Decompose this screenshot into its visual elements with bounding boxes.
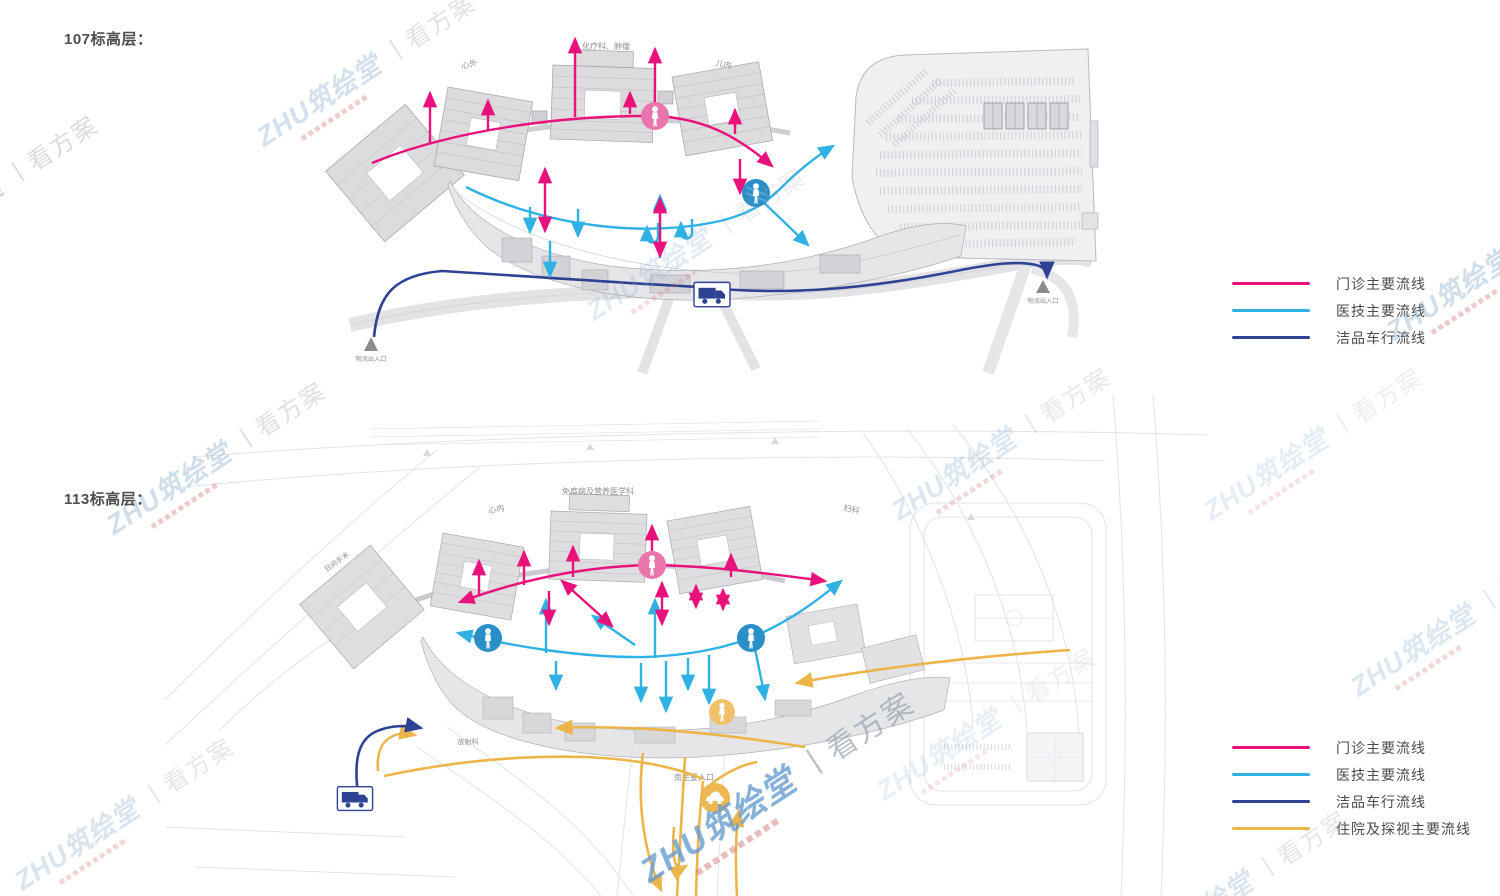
plan-113-title: 113标高层： (64, 488, 152, 509)
logistics-label-left: 物流出入口 (356, 355, 387, 363)
pedestrian-icon-medtech-left (474, 624, 502, 652)
site-roads-113 (165, 395, 1207, 896)
legend-item-medtech: 医技主要流线 (1232, 297, 1426, 324)
legend-113: 门诊主要流线 医技主要流线 洁品车行流线 住院及探视主要流线 (1232, 734, 1471, 842)
legend-item-outpatient: 门诊主要流线 (1232, 734, 1471, 761)
watermark-brand: ZHU筑绘堂 (1341, 594, 1482, 704)
legend-line-outpatient (1232, 746, 1310, 749)
legend-line-medtech (1232, 309, 1310, 312)
pedestrian-icon-medtech-right (737, 624, 765, 652)
truck-icon-107 (694, 282, 730, 306)
pedestrian-icon-outpatient (641, 102, 669, 130)
legend-label: 住院及探视主要流线 (1336, 819, 1471, 839)
plan-107-drawing: 心外 化疗科、肿瘤 儿内 物流出入口 物流出入口 (320, 25, 1150, 375)
watermark-suffix: 丨看方案 (1323, 358, 1429, 444)
clean-goods-flow-113 (356, 726, 421, 794)
pedestrian-icon-inpatient (709, 699, 735, 725)
watermark-suffix: 丨看方案 (1470, 534, 1500, 620)
legend-line-clean-goods (1232, 800, 1310, 803)
south-entrance-label: 南主要入口 (674, 772, 714, 782)
pedestrian-icon-outpatient (638, 551, 666, 579)
legend-label: 门诊主要流线 (1336, 274, 1426, 294)
parking-area-107 (852, 49, 1098, 261)
truck-icon-113 (337, 787, 372, 811)
slide-canvas: 107标高层： 113标高层： (0, 0, 1500, 896)
plan-113-drawing: 心内 免疫病及营养医学科 妇科 放射科 南主要入口 日间手术 (165, 395, 1235, 896)
dept-label-left: 心内 (488, 503, 506, 516)
watermark-suffix: 丨看方案 (0, 106, 104, 192)
dept-label-right: 妇科 (843, 503, 861, 516)
pedestrian-icon-medtech (742, 179, 770, 207)
legend-107: 门诊主要流线 医技主要流线 洁品车行流线 (1232, 270, 1426, 351)
logistics-label-right: 物流出入口 (1028, 297, 1059, 305)
dept-label-left: 心外 (460, 57, 478, 71)
watermark: ZHU筑绘堂丨看方案 (1341, 532, 1500, 704)
legend-label: 洁品车行流线 (1336, 792, 1426, 812)
buildings-113 (300, 493, 950, 758)
dept-label-center: 化疗科、肿瘤 (582, 41, 630, 51)
watermark-brand: ZHU筑绘堂 (0, 166, 10, 276)
legend-line-medtech (1232, 773, 1310, 776)
medtech-flow-113 (458, 581, 841, 711)
dept-label-center: 免疫病及营养医学科 (562, 486, 634, 496)
legend-label: 洁品车行流线 (1336, 328, 1426, 348)
legend-item-inpatient: 住院及探视主要流线 (1232, 815, 1471, 842)
legend-item-clean-goods: 洁品车行流线 (1232, 788, 1471, 815)
logistics-entrance-marker-right (1036, 280, 1050, 293)
watermark-brand: ZHU筑绘堂 (5, 788, 146, 896)
car-icon (700, 783, 730, 813)
legend-line-clean-goods (1232, 336, 1310, 339)
legend-line-inpatient (1232, 827, 1310, 830)
plan-107-title: 107标高层： (64, 28, 153, 49)
legend-label: 门诊主要流线 (1336, 738, 1426, 758)
legend-item-outpatient: 门诊主要流线 (1232, 270, 1426, 297)
legend-label: 医技主要流线 (1336, 765, 1426, 785)
legend-label: 医技主要流线 (1336, 301, 1426, 321)
legend-line-outpatient (1232, 282, 1310, 285)
logistics-entrance-marker-left (364, 337, 378, 351)
watermark: ZHU筑绘堂丨看方案 (0, 104, 105, 276)
legend-item-clean-goods: 洁品车行流线 (1232, 324, 1426, 351)
legend-item-medtech: 医技主要流线 (1232, 761, 1471, 788)
radiology-label: 放射科 (458, 737, 479, 746)
